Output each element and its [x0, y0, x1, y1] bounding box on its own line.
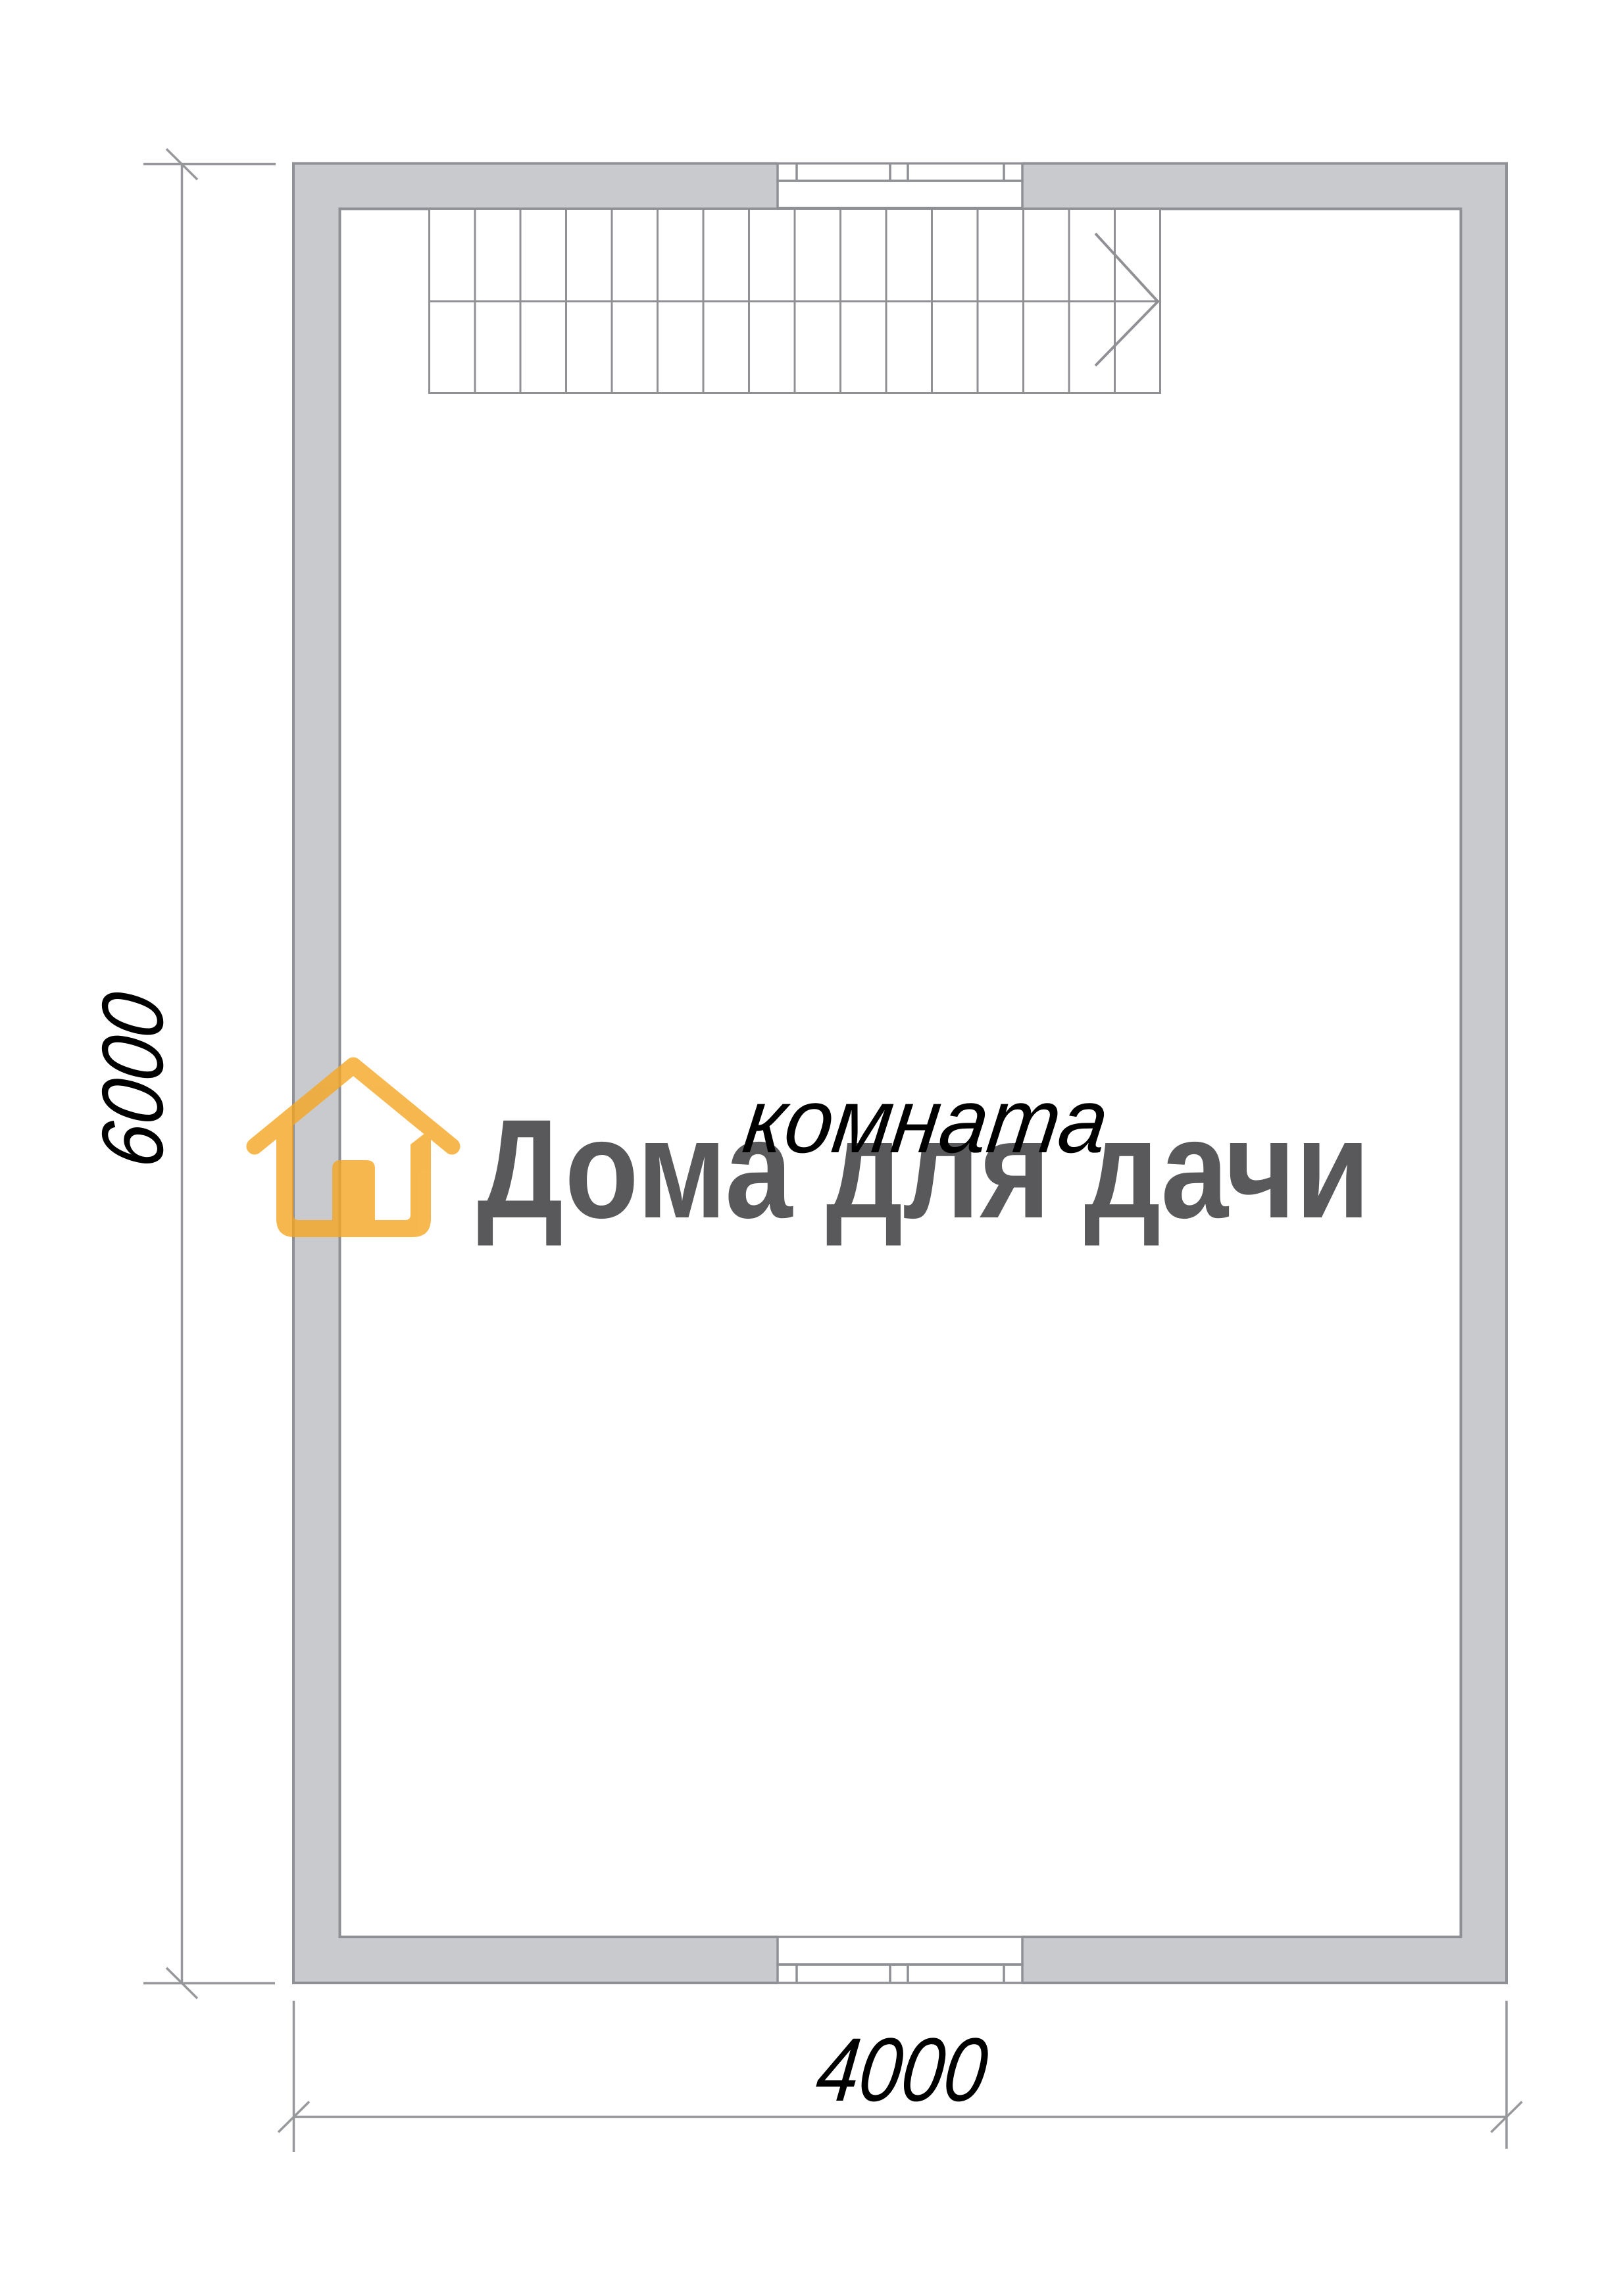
- svg-text:6000: 6000: [84, 987, 181, 1172]
- svg-text:комната: комната: [738, 1069, 1114, 1172]
- svg-text:4000: 4000: [812, 2019, 993, 2120]
